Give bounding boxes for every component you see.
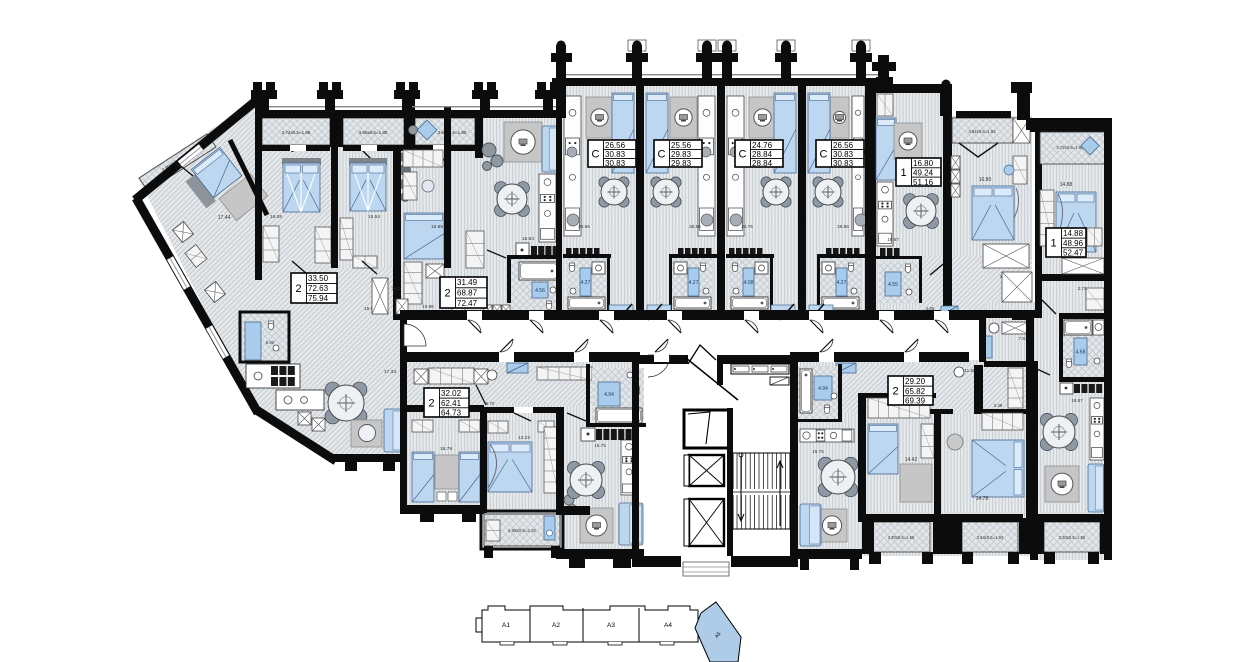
svg-text:65.82: 65.82 <box>905 387 926 396</box>
svg-text:3.30x0.5=1.65: 3.30x0.5=1.65 <box>1059 535 1086 540</box>
svg-text:3.72x0.5=1.88: 3.72x0.5=1.88 <box>1056 145 1084 150</box>
svg-text:3.60x0.5=1.80: 3.60x0.5=1.80 <box>438 130 467 135</box>
svg-text:A1: A1 <box>502 622 510 629</box>
svg-text:28.84: 28.84 <box>752 159 773 168</box>
svg-text:14.88: 14.88 <box>1063 229 1084 238</box>
svg-text:18.84: 18.84 <box>522 236 534 242</box>
svg-text:16.75: 16.75 <box>812 449 824 454</box>
svg-text:13.23: 13.23 <box>518 435 530 441</box>
svg-text:2.72: 2.72 <box>1078 286 1087 291</box>
svg-text:26.56: 26.56 <box>837 224 849 229</box>
svg-text:14.42: 14.42 <box>905 457 918 463</box>
svg-text:29.83: 29.83 <box>671 159 692 168</box>
svg-text:8.70: 8.70 <box>486 401 495 406</box>
svg-text:16.08: 16.08 <box>270 214 282 220</box>
svg-text:3.84x0.5=1.92: 3.84x0.5=1.92 <box>968 129 996 134</box>
svg-text:1: 1 <box>900 167 906 179</box>
svg-text:18.79: 18.79 <box>440 446 452 452</box>
svg-text:48.96: 48.96 <box>1063 239 1084 248</box>
svg-text:4.27: 4.27 <box>837 280 847 286</box>
svg-text:31.49: 31.49 <box>457 278 478 287</box>
svg-text:4.65x0.5=2.32: 4.65x0.5=2.32 <box>508 528 537 533</box>
svg-text:52.47: 52.47 <box>1063 249 1084 258</box>
svg-text:3.38: 3.38 <box>994 403 1003 408</box>
svg-text:4.94: 4.94 <box>604 392 614 398</box>
svg-text:72.47: 72.47 <box>457 299 478 308</box>
svg-text:14.78: 14.78 <box>976 496 989 502</box>
svg-text:5.80: 5.80 <box>266 340 275 345</box>
svg-text:A4: A4 <box>664 622 672 629</box>
svg-text:24.76: 24.76 <box>741 224 753 229</box>
svg-text:19.87: 19.87 <box>887 237 899 242</box>
svg-text:3.64x0.5=1.92: 3.64x0.5=1.92 <box>977 535 1004 540</box>
svg-text:16.80: 16.80 <box>913 159 934 168</box>
svg-text:51.16: 51.16 <box>913 178 934 187</box>
svg-text:4.68: 4.68 <box>1076 350 1086 356</box>
svg-text:69.39: 69.39 <box>905 397 926 406</box>
svg-text:4.27: 4.27 <box>581 280 591 286</box>
svg-text:3.30x0.5=1.65: 3.30x0.5=1.65 <box>888 535 915 540</box>
svg-text:30.83: 30.83 <box>605 159 626 168</box>
svg-text:15.95: 15.95 <box>431 224 443 230</box>
svg-text:28.84: 28.84 <box>752 150 773 159</box>
svg-text:C: C <box>739 149 747 161</box>
svg-text:30.83: 30.83 <box>833 159 854 168</box>
svg-text:25.56: 25.56 <box>689 224 701 229</box>
svg-text:15.54: 15.54 <box>368 214 380 220</box>
svg-text:4.08: 4.08 <box>744 280 754 286</box>
svg-text:26.56: 26.56 <box>605 141 626 150</box>
svg-text:2: 2 <box>428 398 434 410</box>
svg-text:26.56: 26.56 <box>578 224 590 229</box>
svg-text:26.56: 26.56 <box>833 141 854 150</box>
svg-text:3.00: 3.00 <box>392 286 401 291</box>
svg-text:30.83: 30.83 <box>833 150 854 159</box>
svg-text:4.56: 4.56 <box>535 288 545 294</box>
svg-text:2: 2 <box>295 283 301 295</box>
svg-text:4.55: 4.55 <box>888 282 898 288</box>
svg-text:64.73: 64.73 <box>441 409 462 418</box>
svg-text:A3: A3 <box>607 622 615 629</box>
svg-text:C: C <box>658 149 666 161</box>
svg-text:18.87: 18.87 <box>1071 398 1083 403</box>
svg-text:14.88: 14.88 <box>1060 182 1073 188</box>
svg-text:4.94: 4.94 <box>818 386 828 392</box>
svg-text:32.02: 32.02 <box>441 389 462 398</box>
svg-text:17.33: 17.33 <box>384 369 396 375</box>
svg-text:62.41: 62.41 <box>441 399 462 408</box>
svg-text:30.83: 30.83 <box>605 150 626 159</box>
svg-text:16.75: 16.75 <box>594 443 606 448</box>
svg-text:1: 1 <box>1050 238 1056 250</box>
svg-text:29.20: 29.20 <box>905 377 926 386</box>
svg-text:A2: A2 <box>552 622 560 629</box>
svg-text:2: 2 <box>892 386 898 398</box>
svg-text:72.63: 72.63 <box>308 284 329 293</box>
svg-text:4.27: 4.27 <box>689 280 699 286</box>
svg-text:25.56: 25.56 <box>671 141 692 150</box>
svg-text:75.94: 75.94 <box>308 294 329 303</box>
svg-text:3.72x0.5=1.86: 3.72x0.5=1.86 <box>282 130 311 135</box>
svg-text:49.24: 49.24 <box>913 169 934 178</box>
svg-text:16.80: 16.80 <box>979 177 992 183</box>
svg-text:C: C <box>592 149 600 161</box>
svg-text:10.98: 10.98 <box>422 304 434 309</box>
svg-text:C: C <box>820 149 828 161</box>
svg-text:29.83: 29.83 <box>671 150 692 159</box>
svg-text:3.60x0.5=1.80: 3.60x0.5=1.80 <box>359 130 388 135</box>
svg-text:33.50: 33.50 <box>308 274 329 283</box>
svg-text:68.87: 68.87 <box>457 289 478 298</box>
svg-text:2: 2 <box>444 288 450 300</box>
svg-text:17.44: 17.44 <box>218 215 231 221</box>
svg-text:24.76: 24.76 <box>752 141 773 150</box>
